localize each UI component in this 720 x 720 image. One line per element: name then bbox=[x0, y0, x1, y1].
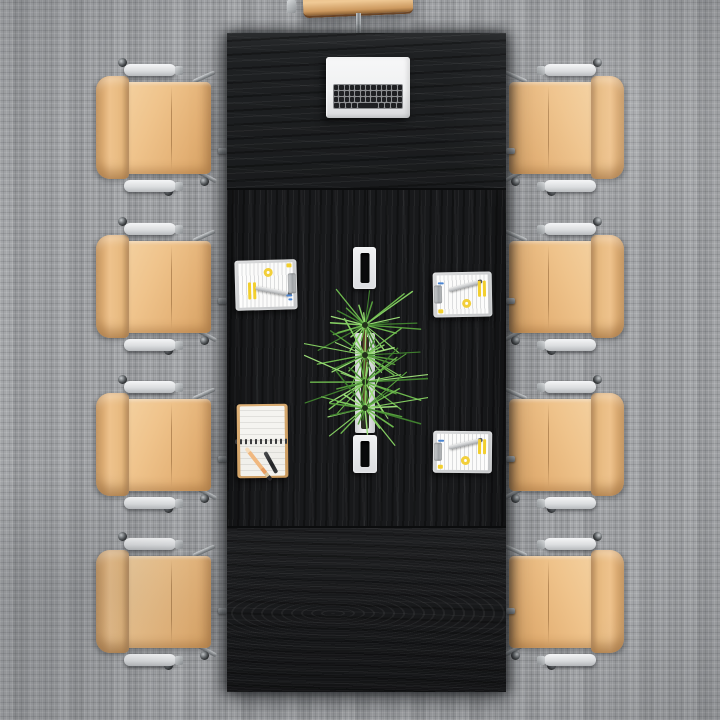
keyboard-key bbox=[352, 103, 357, 108]
chair-seat-cushion bbox=[509, 82, 602, 174]
keyboard-key bbox=[361, 91, 365, 96]
caster-wheel bbox=[200, 651, 209, 660]
chrome-arm-nub bbox=[506, 148, 515, 154]
keyboard-row bbox=[334, 85, 402, 90]
keyboard-key bbox=[340, 103, 345, 108]
laptop bbox=[326, 57, 410, 118]
keyboard-key bbox=[345, 91, 349, 96]
keyboard-key bbox=[385, 103, 390, 108]
chair-armrest bbox=[124, 339, 176, 351]
keyboard-key bbox=[355, 91, 359, 96]
keyboard-key bbox=[371, 97, 375, 102]
document-paper bbox=[437, 434, 488, 471]
keyboard-key bbox=[366, 85, 370, 90]
keyboard-key bbox=[366, 97, 370, 102]
keyboard-key bbox=[397, 103, 402, 108]
keyboard-key bbox=[350, 85, 354, 90]
caster-wheel bbox=[200, 177, 209, 186]
chair-seat-cushion bbox=[118, 556, 211, 648]
keyboard-key bbox=[334, 103, 339, 108]
keyboard-key bbox=[379, 103, 384, 108]
chair-armrest bbox=[124, 180, 176, 192]
chair-armrest bbox=[124, 654, 176, 666]
keyboard-key bbox=[361, 97, 365, 102]
chrome-armrest-nub bbox=[287, 0, 296, 13]
keyboard-key bbox=[345, 97, 349, 102]
blue-mark bbox=[438, 440, 444, 442]
yellow-corner-tab bbox=[438, 309, 443, 313]
caster-wheel bbox=[511, 494, 520, 503]
chair-seat-cushion bbox=[118, 241, 211, 333]
document-paper bbox=[238, 262, 293, 307]
pen-on-paper bbox=[448, 280, 480, 292]
keyboard-key bbox=[392, 91, 396, 96]
keyboard-key bbox=[346, 103, 351, 108]
chair-seat-cushion bbox=[118, 399, 211, 491]
keyboard-key bbox=[377, 85, 381, 90]
caster-wheel bbox=[511, 336, 520, 345]
chair-seat-cushion bbox=[509, 556, 602, 648]
clipboard-clip bbox=[434, 443, 442, 461]
office-chair-right-3 bbox=[492, 378, 624, 513]
clipboard-clip bbox=[288, 273, 297, 293]
blue-mark bbox=[288, 298, 292, 300]
conference-room-scene bbox=[0, 0, 720, 720]
chrome-arm-nub bbox=[218, 608, 227, 614]
keyboard-key bbox=[361, 85, 365, 90]
donut-chart bbox=[462, 299, 471, 308]
blue-mark bbox=[286, 294, 292, 296]
keyboard-row bbox=[334, 97, 402, 102]
document-paper bbox=[437, 275, 489, 315]
keyboard-key bbox=[377, 91, 381, 96]
chair-armrest bbox=[544, 64, 596, 76]
yellow-highlight-bar bbox=[248, 282, 251, 299]
chair-backrest bbox=[96, 550, 129, 653]
office-chair-left-4 bbox=[96, 535, 228, 670]
clipboard-left bbox=[234, 259, 297, 311]
chair-armrest bbox=[544, 339, 596, 351]
clipboard-right-top bbox=[433, 271, 493, 317]
chrome-arm-nub bbox=[218, 456, 227, 462]
blue-mark bbox=[438, 282, 444, 284]
keyboard-key bbox=[355, 85, 359, 90]
office-chair-right-1 bbox=[492, 61, 624, 196]
chair-backrest bbox=[591, 393, 624, 496]
yellow-highlight-bar bbox=[253, 282, 256, 299]
yellow-highlight-bar bbox=[478, 439, 481, 454]
office-chair-left-2 bbox=[96, 220, 228, 355]
keyboard-key bbox=[382, 85, 386, 90]
keyboard-key bbox=[391, 103, 396, 108]
cable-tray-upper bbox=[353, 247, 376, 289]
keyboard-key bbox=[350, 97, 354, 102]
keyboard-key bbox=[355, 97, 359, 102]
chair-backrest bbox=[591, 235, 624, 338]
keyboard-key bbox=[377, 97, 381, 102]
keyboard-key bbox=[358, 103, 378, 108]
chair-backrest bbox=[96, 76, 129, 179]
yellow-highlight-bar bbox=[478, 281, 481, 297]
office-chair-left-3 bbox=[96, 378, 228, 513]
chair-armrest bbox=[124, 538, 176, 550]
chair-armrest bbox=[124, 497, 176, 509]
tray-slot bbox=[360, 253, 369, 283]
chair-armrest bbox=[544, 497, 596, 509]
clipboard-clip bbox=[434, 285, 442, 303]
keyboard-row bbox=[334, 103, 402, 108]
yellow-corner-tab bbox=[438, 465, 443, 469]
keyboard-key bbox=[371, 85, 375, 90]
keyboard-key bbox=[345, 85, 349, 90]
chrome-arm-nub bbox=[506, 298, 515, 304]
office-chair-right-2 bbox=[492, 220, 624, 355]
yellow-highlight-bar bbox=[483, 439, 486, 454]
keyboard-key bbox=[350, 91, 354, 96]
chair-armrest bbox=[544, 223, 596, 235]
keyboard-key bbox=[339, 91, 343, 96]
keyboard-key bbox=[387, 85, 391, 90]
pen-on-paper bbox=[255, 286, 289, 296]
chair-seat-cushion bbox=[509, 241, 602, 333]
yellow-corner-tab bbox=[286, 263, 291, 267]
chrome-arm-nub bbox=[218, 148, 227, 154]
spiky-plant bbox=[304, 286, 428, 450]
chair-armrest bbox=[124, 381, 176, 393]
keyboard-key bbox=[398, 91, 402, 96]
keyboard-key bbox=[334, 97, 338, 102]
clipboard-right-bottom bbox=[433, 431, 492, 474]
keyboard-key bbox=[387, 97, 391, 102]
laptop-keyboard bbox=[333, 84, 403, 109]
chair-armrest bbox=[124, 64, 176, 76]
chair-backrest bbox=[96, 235, 129, 338]
keyboard-key bbox=[382, 91, 386, 96]
donut-chart bbox=[461, 456, 470, 465]
caster-wheel bbox=[200, 336, 209, 345]
chair-armrest bbox=[544, 381, 596, 393]
keyboard-row bbox=[334, 91, 402, 96]
donut-chart bbox=[264, 268, 273, 277]
keyboard-key bbox=[387, 91, 391, 96]
keyboard-key bbox=[371, 91, 375, 96]
chair-armrest bbox=[544, 180, 596, 192]
caster-wheel bbox=[511, 651, 520, 660]
chrome-arm-nub bbox=[218, 298, 227, 304]
keyboard-key bbox=[366, 91, 370, 96]
chrome-chair-pole bbox=[356, 13, 361, 33]
chrome-arm-nub bbox=[506, 456, 515, 462]
chair-seat-cushion bbox=[509, 399, 602, 491]
chair-backrest bbox=[96, 393, 129, 496]
chrome-arm-nub bbox=[506, 608, 515, 614]
keyboard-key bbox=[392, 85, 396, 90]
keyboard-key bbox=[398, 97, 402, 102]
chair-armrest bbox=[544, 538, 596, 550]
chair-backrest bbox=[591, 550, 624, 653]
keyboard-key bbox=[398, 85, 402, 90]
caster-wheel bbox=[511, 177, 520, 186]
keyboard-key bbox=[334, 85, 338, 90]
keyboard-key bbox=[339, 85, 343, 90]
chair-seat-cushion bbox=[118, 82, 211, 174]
keyboard-key bbox=[382, 97, 386, 102]
office-chair-right-4 bbox=[492, 535, 624, 670]
keyboard-key bbox=[392, 97, 396, 102]
keyboard-key bbox=[334, 91, 338, 96]
yellow-highlight-bar bbox=[483, 281, 486, 297]
pen-on-paper bbox=[448, 438, 480, 449]
caster-wheel bbox=[200, 494, 209, 503]
chair-armrest bbox=[544, 654, 596, 666]
chair-backrest bbox=[591, 76, 624, 179]
table-bottom-section bbox=[227, 528, 506, 692]
office-chair-left-1 bbox=[96, 61, 228, 196]
chair-armrest bbox=[124, 223, 176, 235]
notebook-spiral bbox=[235, 438, 290, 444]
keyboard-key bbox=[339, 97, 343, 102]
